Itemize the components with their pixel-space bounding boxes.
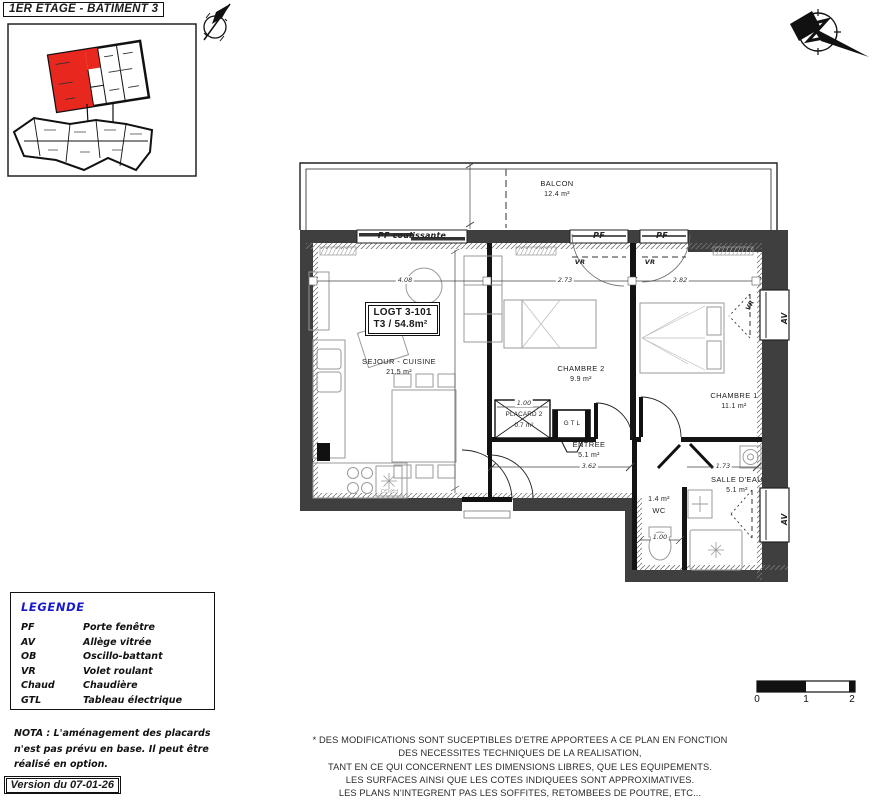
room-label-chambre1: CHAMBRE 1 11.1 m² bbox=[710, 391, 757, 412]
room-label-wc: 1.4 m² WC bbox=[648, 495, 670, 516]
legend-row-pf: PF Porte fenêtre bbox=[21, 621, 214, 636]
room-label-sejour: SEJOUR - CUISINE 21.5 m² bbox=[362, 357, 436, 378]
north-arrow-small-icon bbox=[204, 4, 230, 41]
annotation-av-1: AV bbox=[780, 313, 789, 325]
room-label-gtl: G T L bbox=[564, 419, 581, 430]
dim-salle-eau-width: 1.73 bbox=[714, 462, 732, 470]
page-title: 1ER ETAGE - BATIMENT 3 bbox=[3, 2, 164, 17]
annotation-av-2: AV bbox=[780, 514, 789, 526]
annotation-pf-coulissante: PF coulissante bbox=[378, 231, 446, 240]
dim-sejour-width: 4.08 bbox=[396, 276, 414, 284]
legend-title: LEGENDE bbox=[21, 600, 214, 614]
room-label-placard: PLACARD 2 0.7 m² bbox=[506, 410, 543, 431]
legend-row-vr: VR Volet roulant bbox=[21, 665, 214, 680]
room-label-balcon: BALCON 12.4 m² bbox=[540, 179, 573, 200]
boiler-chaud-icon bbox=[317, 443, 330, 461]
version-box: Version du 07-01-26 bbox=[4, 776, 121, 794]
annotation-vr-2: VR bbox=[645, 258, 655, 266]
key-plan bbox=[8, 24, 196, 176]
nota-text: NOTA : L'aménagement des placards n'est … bbox=[14, 726, 222, 773]
legend-row-gtl: GTL Tableau électrique bbox=[21, 694, 214, 709]
unit-id: LOGT 3-101 bbox=[374, 307, 432, 320]
scale-bar bbox=[757, 681, 855, 692]
disclaimer-text: * DES MODIFICATIONS SONT SUCEPTIBLES D'E… bbox=[280, 734, 760, 800]
legend: LEGENDE PF Porte fenêtre AV Allège vitré… bbox=[10, 592, 215, 710]
room-label-entree: ENTREE 5.1 m² bbox=[573, 440, 606, 461]
unit-label-box: LOGT 3-101 T3 / 54.8m² bbox=[365, 302, 440, 336]
annotation-frigo: FRIGO bbox=[381, 487, 398, 493]
room-label-chambre2: CHAMBRE 2 9.9 m² bbox=[557, 364, 604, 385]
dim-chambre1-width: 2.82 bbox=[671, 276, 689, 284]
legend-row-chaud: Chaud Chaudière bbox=[21, 679, 214, 694]
scale-label-0: 0 bbox=[754, 694, 760, 705]
annotation-pf-2: PF bbox=[656, 231, 668, 240]
scale-label-1: 1 bbox=[803, 694, 809, 705]
floor-plan-page: { "header": { "title": "1ER ETAGE - BATI… bbox=[0, 0, 881, 800]
annotation-vr-1: VR bbox=[575, 258, 585, 266]
legend-row-av: AV Allège vitrée bbox=[21, 636, 214, 651]
balcony-outline bbox=[300, 163, 777, 230]
annotation-pf-1: PF bbox=[593, 231, 605, 240]
legend-row-ob: OB Oscillo-battant bbox=[21, 650, 214, 665]
dim-chambre2-width: 2.73 bbox=[556, 276, 574, 284]
room-label-salle-eau: SALLE D'EAU 5.1 m² bbox=[711, 475, 763, 496]
dim-wc-width: 1.00 bbox=[651, 533, 669, 541]
north-arrow-large-icon bbox=[790, 9, 869, 57]
unit-type: T3 / 54.8m² bbox=[374, 319, 432, 332]
scale-label-2: 2 bbox=[849, 694, 855, 705]
dim-entree-width: 3.62 bbox=[580, 462, 598, 470]
dim-placard-width: 1.00 bbox=[515, 399, 533, 407]
